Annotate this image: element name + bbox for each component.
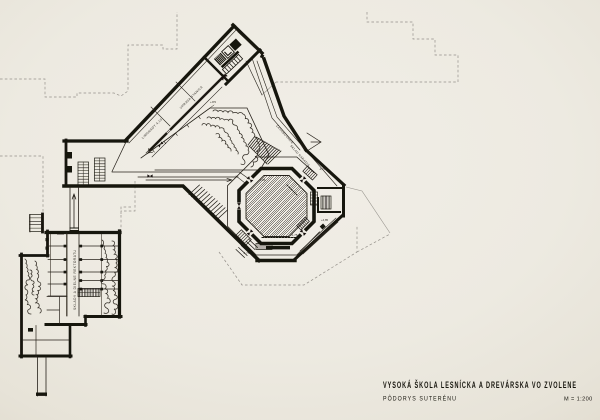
svg-text:PÔDORYS SUTERÉNU: PÔDORYS SUTERÉNU: [383, 396, 457, 403]
svg-text:-1,75: -1,75: [319, 167, 326, 171]
svg-text:M = 1:200: M = 1:200: [564, 397, 593, 403]
svg-text:+85: +85: [210, 100, 216, 104]
svg-text:-1,75: -1,75: [243, 251, 250, 255]
svg-text:+4,85: +4,85: [321, 218, 329, 222]
svg-text:SKLADY A DIELNE REKTORATU: SKLADY A DIELNE REKTORATU: [73, 249, 77, 310]
svg-text:-1,06: -1,06: [259, 178, 266, 182]
svg-text:VYSOKÁ ŠKOLA LESNÍCKA A DREVÁR: VYSOKÁ ŠKOLA LESNÍCKA A DREVÁRSKA VO ZVO…: [383, 379, 577, 390]
svg-text:-1,75: -1,75: [291, 233, 298, 237]
